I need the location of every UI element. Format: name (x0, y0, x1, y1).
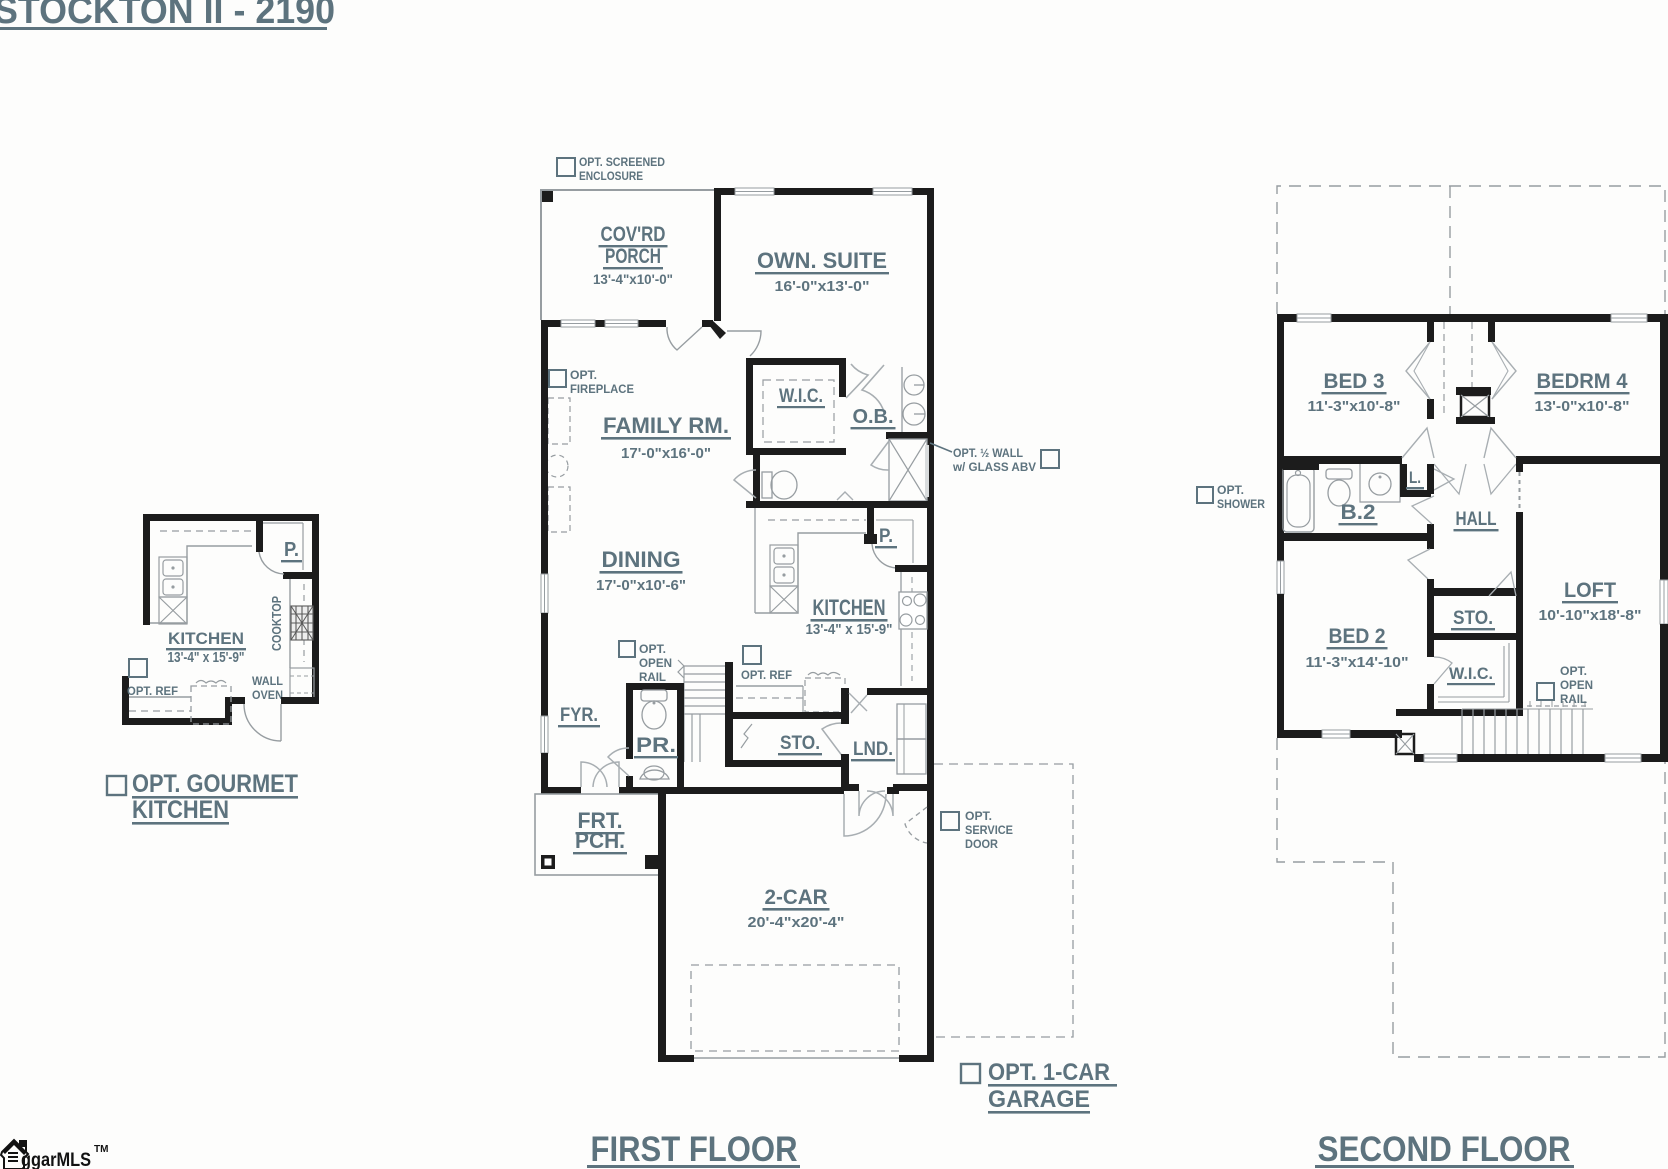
svg-text:10'-10"x18'-8": 10'-10"x18'-8" (1539, 607, 1642, 624)
svg-text:RAIL: RAIL (1560, 692, 1587, 706)
svg-text:17'-0"x16'-0": 17'-0"x16'-0" (621, 445, 711, 462)
svg-text:COOKTOP: COOKTOP (269, 596, 284, 651)
svg-text:HALL: HALL (1456, 509, 1497, 530)
svg-text:LOFT: LOFT (1564, 579, 1616, 602)
svg-text:11'-3"x10'-8": 11'-3"x10'-8" (1308, 398, 1401, 415)
svg-text:OPT. REF: OPT. REF (741, 668, 792, 682)
svg-text:20'-4"x20'-4": 20'-4"x20'-4" (748, 914, 845, 931)
svg-text:PORCH: PORCH (605, 245, 661, 268)
svg-text:OPT. 1-CAR: OPT. 1-CAR (988, 1059, 1110, 1086)
svg-text:LND.: LND. (853, 739, 893, 760)
svg-text:OPT. GOURMET: OPT. GOURMET (132, 770, 298, 798)
svg-text:PCH.: PCH. (575, 828, 625, 853)
svg-text:BED 2: BED 2 (1329, 625, 1386, 648)
svg-text:SERVICE: SERVICE (965, 823, 1013, 837)
svg-text:11'-3"x14'-10": 11'-3"x14'-10" (1306, 654, 1409, 671)
svg-text:STO.: STO. (1453, 608, 1493, 629)
svg-text:16'-0"x13'-0": 16'-0"x13'-0" (775, 278, 870, 295)
svg-text:GARAGE: GARAGE (988, 1086, 1090, 1113)
svg-text:SHOWER: SHOWER (1217, 497, 1265, 511)
svg-text:SECOND FLOOR: SECOND FLOOR (1318, 1130, 1571, 1169)
svg-text:BEDRM 4: BEDRM 4 (1537, 370, 1628, 393)
svg-text:L.: L. (1409, 468, 1421, 487)
svg-text:ggarMLS: ggarMLS (21, 1150, 91, 1169)
svg-text:13'-0"x10'-8": 13'-0"x10'-8" (1535, 398, 1630, 415)
svg-text:13'-4" x 15'-9": 13'-4" x 15'-9" (806, 621, 893, 638)
svg-text:OPT. ½ WALL: OPT. ½ WALL (953, 446, 1023, 460)
svg-text:OPEN: OPEN (639, 656, 672, 670)
svg-text:P.: P. (284, 539, 299, 561)
svg-text:FAMILY RM.: FAMILY RM. (603, 413, 729, 438)
svg-text:w/ GLASS ABV: w/ GLASS ABV (952, 460, 1036, 474)
svg-text:OPT.: OPT. (570, 368, 597, 382)
svg-text:WALL: WALL (252, 674, 283, 688)
svg-text:TM: TM (94, 1144, 108, 1155)
svg-text:W.I.C.: W.I.C. (1449, 664, 1493, 683)
svg-text:PR.: PR. (636, 734, 676, 757)
svg-text:FYR.: FYR. (560, 705, 598, 726)
svg-text:W.I.C.: W.I.C. (779, 386, 823, 407)
svg-text:OWN. SUITE: OWN. SUITE (757, 248, 887, 273)
svg-text:STO.: STO. (780, 733, 820, 754)
svg-text:OVEN: OVEN (252, 688, 283, 702)
svg-text:2-CAR: 2-CAR (765, 886, 828, 909)
svg-text:FIREPLACE: FIREPLACE (570, 382, 634, 396)
svg-text:ENCLOSURE: ENCLOSURE (579, 169, 643, 183)
svg-text:COV'RD: COV'RD (601, 223, 666, 246)
svg-text:RAIL: RAIL (639, 670, 666, 684)
svg-text:FIRST FLOOR: FIRST FLOOR (591, 1130, 798, 1169)
svg-text:OPEN: OPEN (1560, 678, 1593, 692)
svg-text:OPT. REF: OPT. REF (127, 684, 178, 698)
svg-text:13'-4" x 15'-9": 13'-4" x 15'-9" (168, 649, 245, 666)
svg-text:OPT. SCREENED: OPT. SCREENED (579, 155, 665, 169)
svg-text:O.B.: O.B. (853, 406, 894, 428)
svg-text:OPT.: OPT. (639, 642, 666, 656)
svg-text:OPT.: OPT. (965, 809, 992, 823)
svg-text:P.: P. (879, 526, 893, 547)
svg-text:13'-4"x10'-0": 13'-4"x10'-0" (593, 271, 673, 287)
svg-text:KITCHEN: KITCHEN (813, 595, 886, 620)
svg-text:17'-0"x10'-6": 17'-0"x10'-6" (596, 577, 686, 594)
svg-text:B.2: B.2 (1341, 501, 1376, 524)
svg-text:OPT.: OPT. (1217, 483, 1244, 497)
svg-text:BED 3: BED 3 (1324, 370, 1385, 393)
svg-text:DINING: DINING (602, 547, 681, 572)
svg-text:KITCHEN: KITCHEN (168, 629, 244, 648)
svg-text:OPT.: OPT. (1560, 664, 1587, 678)
svg-text:KITCHEN: KITCHEN (132, 796, 229, 824)
svg-text:DOOR: DOOR (965, 837, 998, 851)
